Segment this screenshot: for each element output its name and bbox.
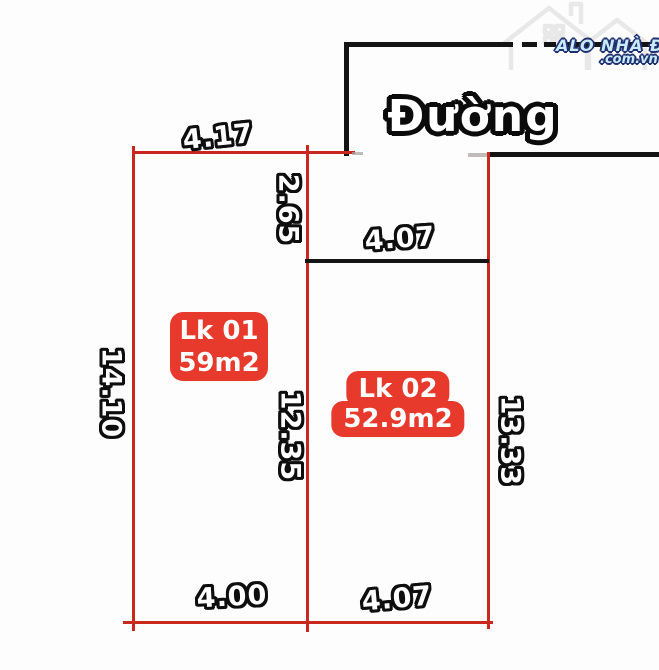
- plot1-badge: Lk 01 59m2: [170, 312, 268, 381]
- dimension-plot2-top: 4.07: [364, 223, 436, 255]
- plot2-area: 52.9m2: [331, 401, 464, 437]
- land-plot-diagram: ALO NHÀ ĐẤT .com.vn Đường 4.17 2.65 4.07…: [0, 0, 659, 670]
- road-top-line-dash1: [522, 42, 537, 47]
- dimension-plot1-top: 4.17: [181, 120, 254, 154]
- plot1-top-boundary: [132, 151, 355, 154]
- road-top-line-dash2: [544, 42, 556, 47]
- plot2-top-line: [305, 259, 489, 263]
- plots-bottom-boundary: [123, 621, 493, 624]
- dimension-plot2-bottom: 4.07: [361, 582, 434, 615]
- dimension-plot1-bottom: 4.00: [196, 582, 268, 613]
- road-bottom-right-line: [487, 152, 659, 157]
- plot-divider-boundary: [306, 145, 309, 632]
- road-bottom-line-fade: [468, 153, 488, 157]
- plot1-left-boundary: [132, 146, 135, 631]
- dimension-plot2-front-depth: 2.65: [275, 174, 302, 245]
- dimension-plot1-left: 14.10: [98, 348, 125, 438]
- dimension-divider: 12.35: [277, 391, 304, 481]
- road-top-line: [344, 42, 513, 47]
- road-label: Đường: [387, 95, 558, 139]
- dimension-plot2-right: 13.33: [497, 396, 524, 486]
- plot1-area: 59m2: [178, 347, 259, 379]
- road-left-line: [344, 42, 349, 156]
- watermark-logo: ALO NHÀ ĐẤT .com.vn: [497, 0, 659, 70]
- plot1-id: Lk 01: [179, 315, 258, 347]
- plot1-top-boundary-fade: [352, 152, 363, 155]
- logo-domain-text: .com.vn: [600, 52, 658, 67]
- plot2-right-boundary: [487, 152, 490, 629]
- plot2-badge: Lk 02 52.9m2: [331, 371, 464, 437]
